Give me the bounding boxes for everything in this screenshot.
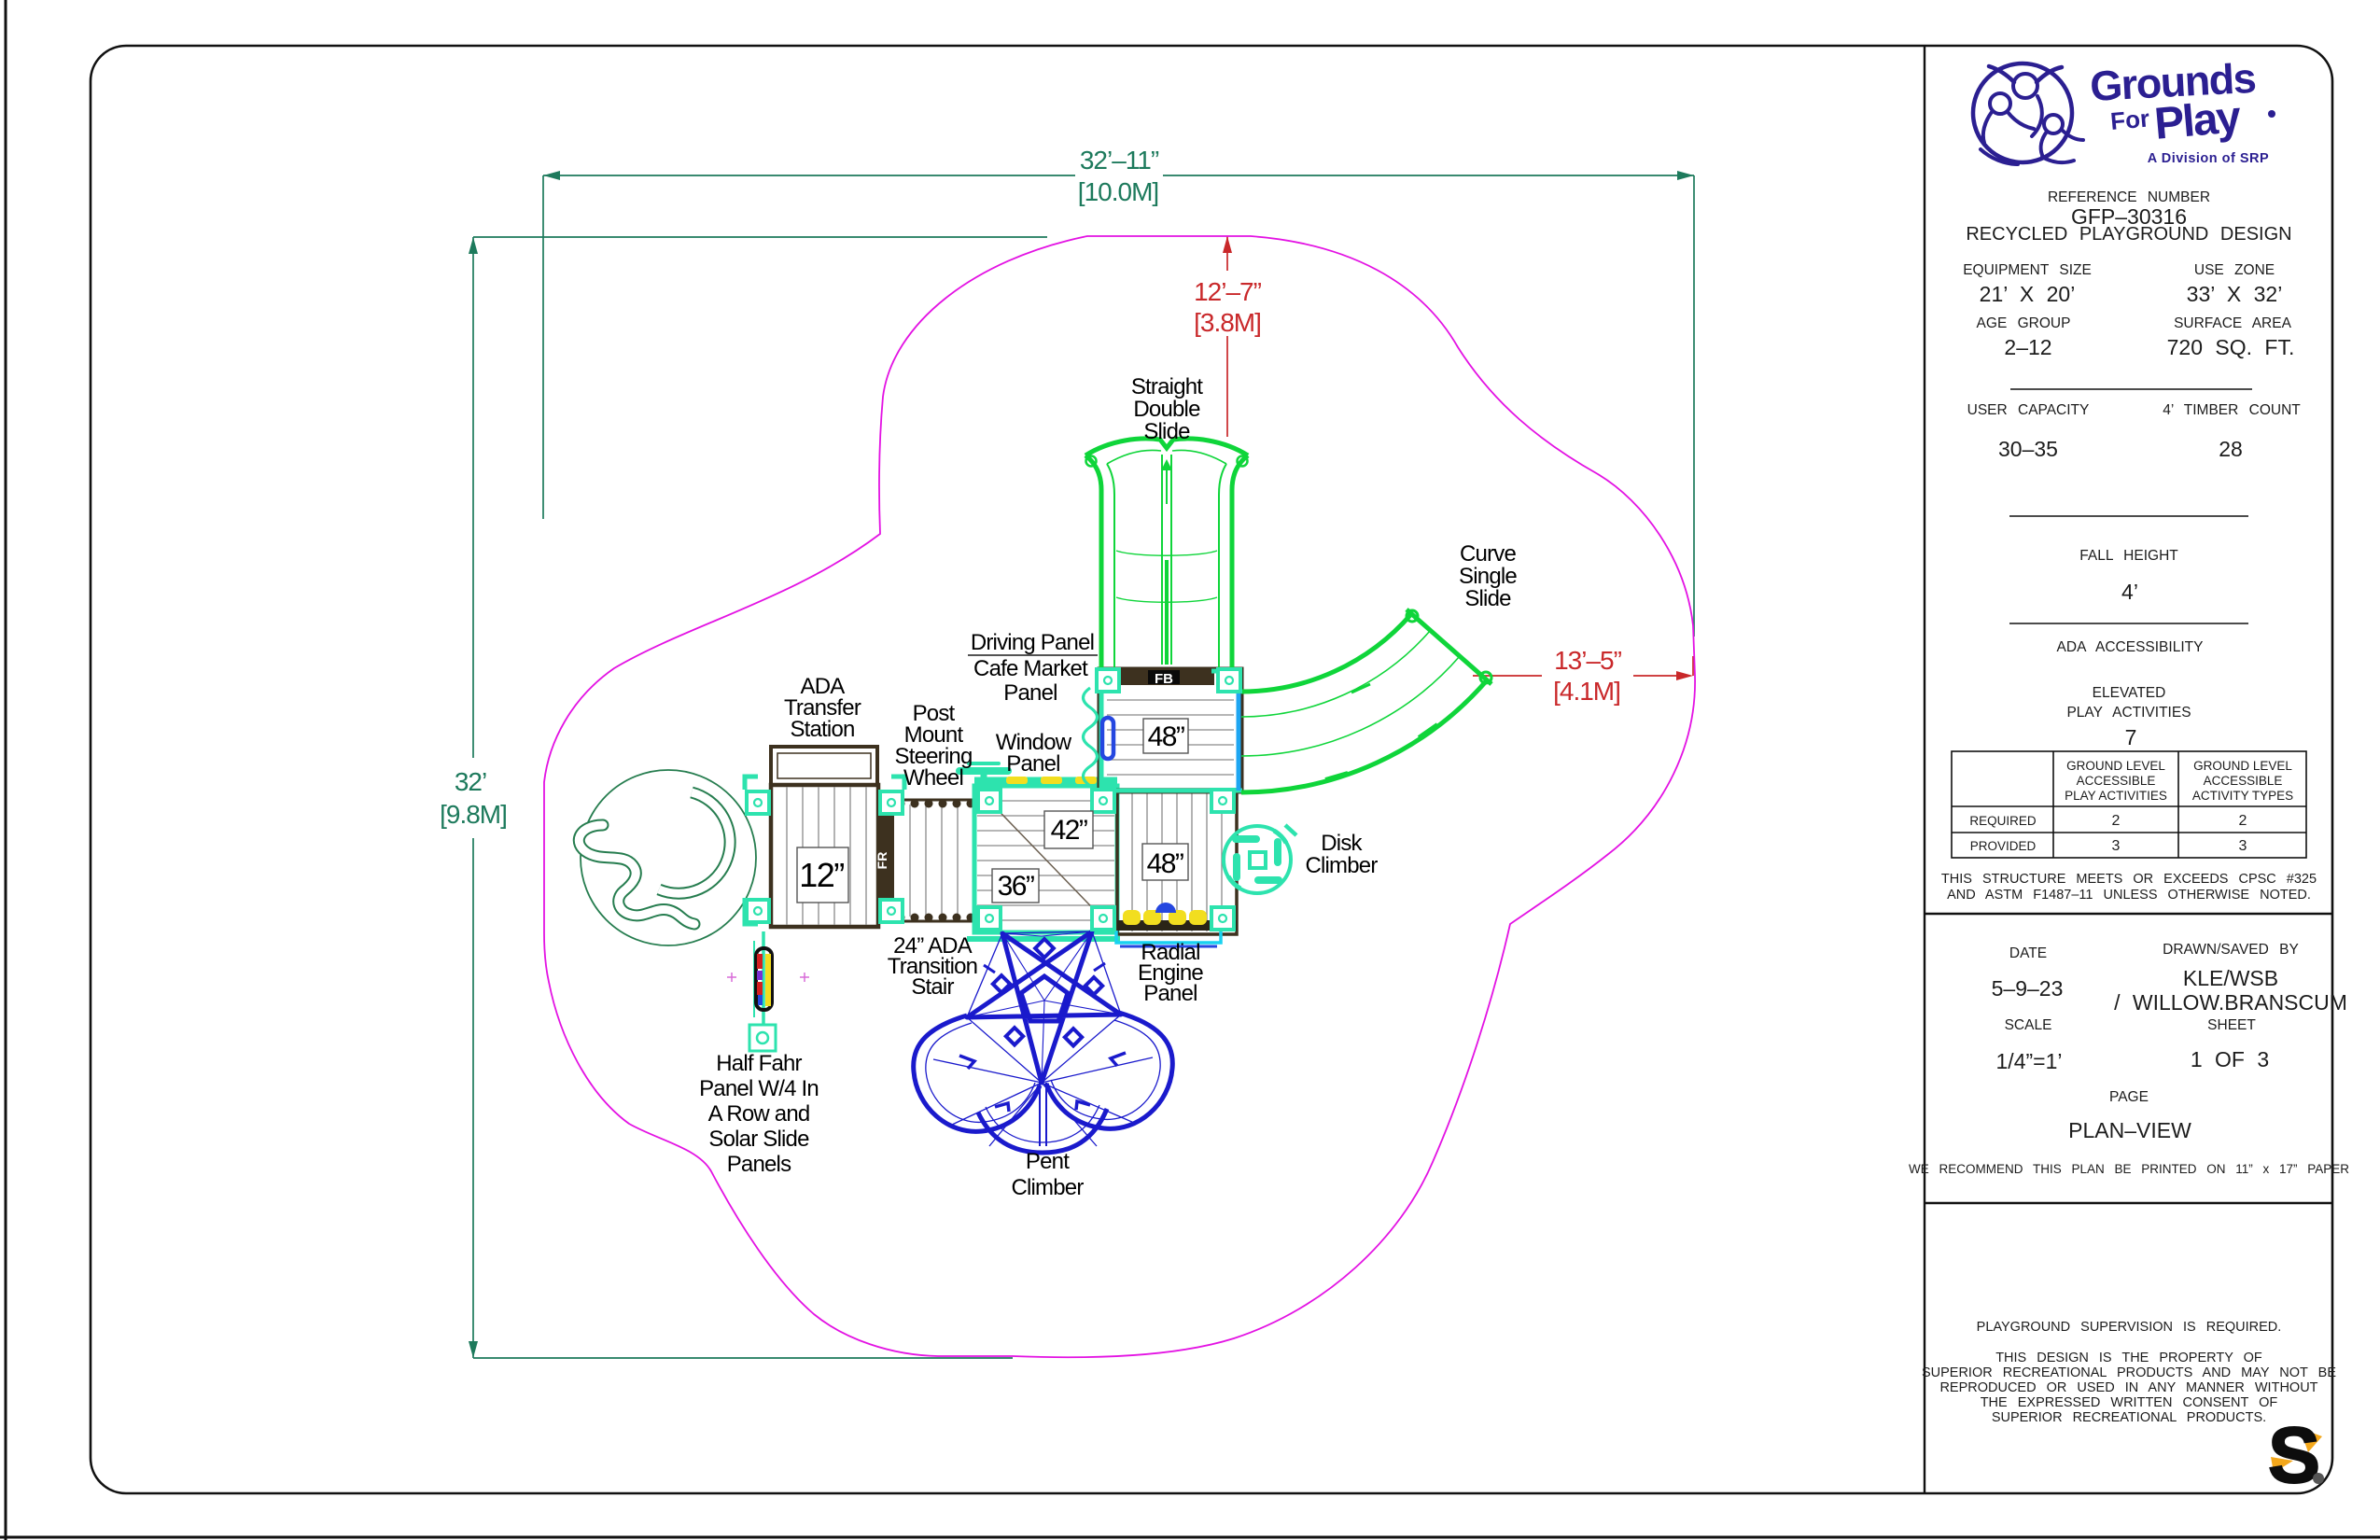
- svg-text:SHEET: SHEET: [2207, 1017, 2256, 1033]
- svg-text:SURFACE AREA: SURFACE AREA: [2174, 315, 2292, 331]
- svg-text:5–9–23: 5–9–23: [1992, 976, 2064, 1001]
- svg-text:Half Fahr: Half Fahr: [716, 1051, 802, 1076]
- svg-text:32’: 32’: [455, 767, 486, 796]
- svg-text:KLE/WSB: KLE/WSB: [2183, 966, 2278, 990]
- svg-text:EQUIPMENT SIZE: EQUIPMENT SIZE: [1963, 262, 2092, 278]
- svg-text:FR: FR: [875, 852, 889, 870]
- svg-text:Panels: Panels: [727, 1152, 791, 1177]
- svg-text:ACCESSIBLE: ACCESSIBLE: [2077, 774, 2156, 788]
- svg-text:FB: FB: [1155, 671, 1173, 687]
- svg-text:Panel: Panel: [1003, 680, 1057, 706]
- svg-text:21’ X 20’: 21’ X 20’: [1980, 282, 2076, 306]
- svg-text:DRAWN/SAVED BY: DRAWN/SAVED BY: [2163, 942, 2299, 958]
- svg-text:AGE GROUP: AGE GROUP: [1977, 315, 2071, 331]
- svg-text:WE RECOMMEND THIS PLAN BE PRIN: WE RECOMMEND THIS PLAN BE PRINTED ON 11”…: [1909, 1162, 2349, 1176]
- svg-text:SUPERIOR RECREATIONAL PRODUCTS: SUPERIOR RECREATIONAL PRODUCTS.: [1992, 1410, 2266, 1425]
- svg-text:Climber: Climber: [1011, 1175, 1084, 1200]
- svg-text:PLAYGROUND SUPERVISION IS REQU: PLAYGROUND SUPERVISION IS REQUIRED.: [1977, 1320, 2282, 1335]
- svg-text:13’–5”: 13’–5”: [1554, 646, 1622, 675]
- svg-text:1/4”=1’: 1/4”=1’: [1996, 1049, 2063, 1073]
- svg-text:30–35: 30–35: [1998, 437, 2058, 461]
- svg-text:Straight: Straight: [1131, 374, 1203, 399]
- svg-text:28: 28: [2219, 437, 2243, 461]
- svg-text:ELEVATED: ELEVATED: [2093, 685, 2166, 701]
- svg-text:Stair: Stair: [911, 974, 954, 1000]
- svg-text:1 OF 3: 1 OF 3: [2191, 1047, 2269, 1071]
- svg-text:REFERENCE NUMBER: REFERENCE NUMBER: [2048, 189, 2210, 205]
- svg-text:Climber: Climber: [1305, 853, 1378, 878]
- svg-text:[9.8M]: [9.8M]: [440, 800, 507, 829]
- svg-text:48”: 48”: [1147, 848, 1183, 879]
- svg-text:SUPERIOR RECREATIONAL PRODUCTS: SUPERIOR RECREATIONAL PRODUCTS AND MAY N…: [1922, 1365, 2336, 1380]
- svg-text:PAGE: PAGE: [2109, 1089, 2149, 1105]
- svg-text:4’: 4’: [2121, 580, 2138, 604]
- svg-text:2–12: 2–12: [2004, 335, 2051, 359]
- svg-text:[3.8M]: [3.8M]: [1194, 308, 1261, 337]
- svg-text:ADA ACCESSIBILITY: ADA ACCESSIBILITY: [2057, 639, 2204, 655]
- svg-text:THIS STRUCTURE MEETS OR EXCEED: THIS STRUCTURE MEETS OR EXCEEDS CPSC #32…: [1941, 872, 2317, 887]
- svg-text:Panel: Panel: [1143, 981, 1197, 1006]
- svg-text:2: 2: [2239, 813, 2247, 829]
- svg-text:A Division of SRP: A Division of SRP: [2148, 151, 2269, 166]
- svg-text:3: 3: [2112, 838, 2121, 854]
- svg-text:[10.0M]: [10.0M]: [1078, 177, 1158, 206]
- svg-text:Slide: Slide: [1143, 419, 1190, 444]
- svg-text:THIS DESIGN IS THE PROPERTY OF: THIS DESIGN IS THE PROPERTY OF: [1995, 1351, 2262, 1365]
- svg-text:32’–11”: 32’–11”: [1080, 146, 1159, 175]
- svg-text:Double: Double: [1133, 397, 1200, 422]
- svg-text:REQUIRED: REQUIRED: [1969, 814, 2037, 828]
- svg-text:2: 2: [2112, 813, 2121, 829]
- svg-text:Pent: Pent: [1026, 1149, 1070, 1174]
- svg-text:Play: Play: [2152, 92, 2243, 149]
- svg-text:12”: 12”: [799, 856, 844, 894]
- svg-text:REPRODUCED OR USED IN ANY MANN: REPRODUCED OR USED IN ANY MANNER WITHOUT: [1939, 1380, 2317, 1395]
- svg-text:USE ZONE: USE ZONE: [2194, 262, 2275, 278]
- svg-text:A Row and: A Row and: [708, 1101, 810, 1127]
- svg-text:4’ TIMBER COUNT: 4’ TIMBER COUNT: [2163, 402, 2301, 418]
- svg-text:Solar Slide: Solar Slide: [708, 1127, 809, 1152]
- svg-text:Cafe Market: Cafe Market: [973, 656, 1088, 681]
- svg-text:PLAY ACTIVITIES: PLAY ACTIVITIES: [2065, 789, 2167, 803]
- svg-text:Station: Station: [790, 717, 854, 742]
- svg-text:Disk: Disk: [1321, 831, 1363, 856]
- svg-text:Single: Single: [1459, 564, 1517, 589]
- svg-text:PROVIDED: PROVIDED: [1970, 839, 2037, 853]
- svg-text:33’ X 32’: 33’ X 32’: [2187, 282, 2283, 306]
- svg-text:Slide: Slide: [1464, 586, 1511, 611]
- svg-text:AND ASTM F1487–11 UNLESS OTHER: AND ASTM F1487–11 UNLESS OTHERWISE NOTED…: [1947, 888, 2311, 903]
- svg-text:3: 3: [2239, 838, 2247, 854]
- svg-text:7: 7: [2125, 725, 2137, 749]
- svg-text:FALL HEIGHT: FALL HEIGHT: [2079, 548, 2178, 564]
- svg-text:GROUND LEVEL: GROUND LEVEL: [2193, 759, 2292, 773]
- svg-text:GFP–30316: GFP–30316: [2071, 204, 2187, 229]
- svg-text:[4.1M]: [4.1M]: [1553, 677, 1620, 706]
- svg-text:Panel: Panel: [1006, 751, 1059, 777]
- svg-text:42”: 42”: [1051, 815, 1087, 846]
- svg-text:Panel W/4 In: Panel W/4 In: [699, 1076, 819, 1101]
- svg-text:SCALE: SCALE: [2005, 1017, 2052, 1033]
- svg-text:PLAN–VIEW: PLAN–VIEW: [2068, 1118, 2191, 1142]
- svg-text:ACCESSIBLE: ACCESSIBLE: [2204, 774, 2283, 788]
- svg-text:48”: 48”: [1148, 721, 1184, 752]
- svg-text:DATE: DATE: [2009, 945, 2047, 961]
- svg-text:720 SQ. FT.: 720 SQ. FT.: [2167, 335, 2295, 359]
- svg-text:GROUND LEVEL: GROUND LEVEL: [2066, 759, 2165, 773]
- svg-text:Wheel: Wheel: [903, 765, 963, 791]
- svg-text:PLAY ACTIVITIES: PLAY ACTIVITIES: [2066, 705, 2191, 721]
- svg-text:12’–7”: 12’–7”: [1194, 277, 1262, 306]
- svg-text:Driving Panel: Driving Panel: [971, 630, 1094, 655]
- svg-text:ACTIVITY TYPES: ACTIVITY TYPES: [2192, 789, 2293, 803]
- svg-text:36”: 36”: [998, 871, 1034, 902]
- svg-text:S: S: [2268, 1411, 2320, 1499]
- svg-text:THE EXPRESSED WRITTEN CONSENT: THE EXPRESSED WRITTEN CONSENT OF: [1981, 1395, 2278, 1410]
- svg-text:Curve: Curve: [1460, 541, 1516, 567]
- svg-text:For: For: [2109, 104, 2150, 135]
- svg-text:/ WILLOW.BRANSCUM: / WILLOW.BRANSCUM: [2114, 990, 2347, 1015]
- svg-text:USER CAPACITY: USER CAPACITY: [1967, 402, 2090, 418]
